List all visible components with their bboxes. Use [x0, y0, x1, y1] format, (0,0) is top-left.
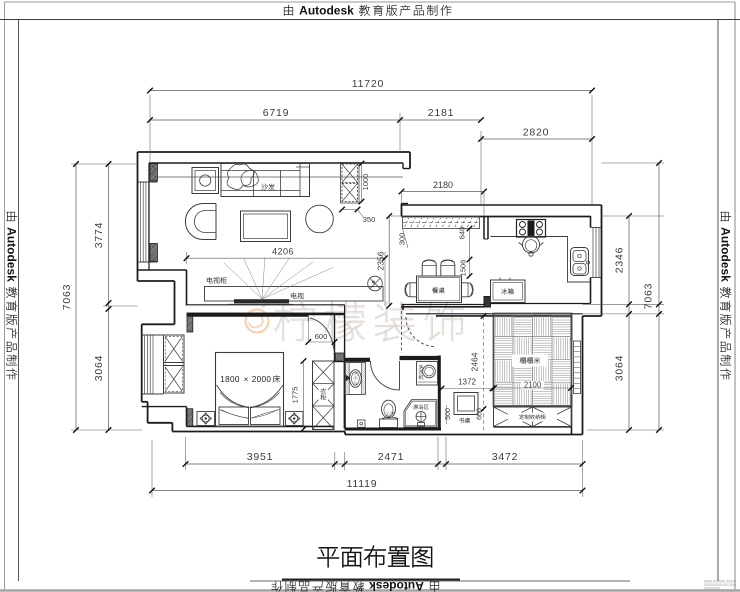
svg-text:1800: 1800 [220, 375, 240, 384]
svg-text:640: 640 [458, 227, 467, 240]
svg-text:Autodesk: Autodesk [718, 227, 732, 282]
svg-text:2100: 2100 [524, 381, 542, 390]
svg-text:11119: 11119 [347, 478, 378, 490]
svg-text:6719: 6719 [263, 107, 290, 119]
svg-text:600: 600 [477, 408, 484, 420]
svg-text:11720: 11720 [352, 78, 384, 90]
svg-text:00000000: 00000000 [704, 586, 720, 590]
svg-text:1372: 1372 [458, 378, 476, 387]
svg-text:2471: 2471 [378, 451, 405, 463]
svg-text:3774: 3774 [93, 222, 105, 249]
svg-text:2346: 2346 [614, 247, 626, 274]
svg-text:3951: 3951 [247, 451, 274, 463]
svg-text:2180: 2180 [433, 180, 453, 190]
svg-text:2820: 2820 [523, 127, 550, 139]
svg-text:3064: 3064 [93, 355, 105, 382]
svg-text:500: 500 [445, 408, 452, 420]
svg-text:Autodesk: Autodesk [4, 227, 18, 282]
svg-text:×: × [244, 375, 249, 384]
svg-text:2356: 2356 [376, 251, 386, 270]
svg-text:2181: 2181 [428, 107, 455, 119]
svg-text:7063: 7063 [643, 283, 655, 310]
svg-text:7063: 7063 [61, 284, 73, 311]
svg-text:1775: 1775 [291, 387, 300, 404]
svg-text:1506: 1506 [459, 260, 468, 277]
svg-text:Autodesk: Autodesk [299, 4, 354, 18]
svg-text:300: 300 [398, 233, 407, 246]
svg-text:1000: 1000 [361, 174, 370, 191]
svg-text:3064: 3064 [614, 355, 626, 382]
svg-text:3472: 3472 [492, 451, 519, 463]
svg-text:2464: 2464 [470, 352, 480, 371]
svg-text:350: 350 [363, 215, 376, 224]
svg-text:4206: 4206 [272, 247, 294, 257]
svg-text:2000: 2000 [252, 375, 272, 384]
svg-text:600: 600 [315, 332, 328, 341]
